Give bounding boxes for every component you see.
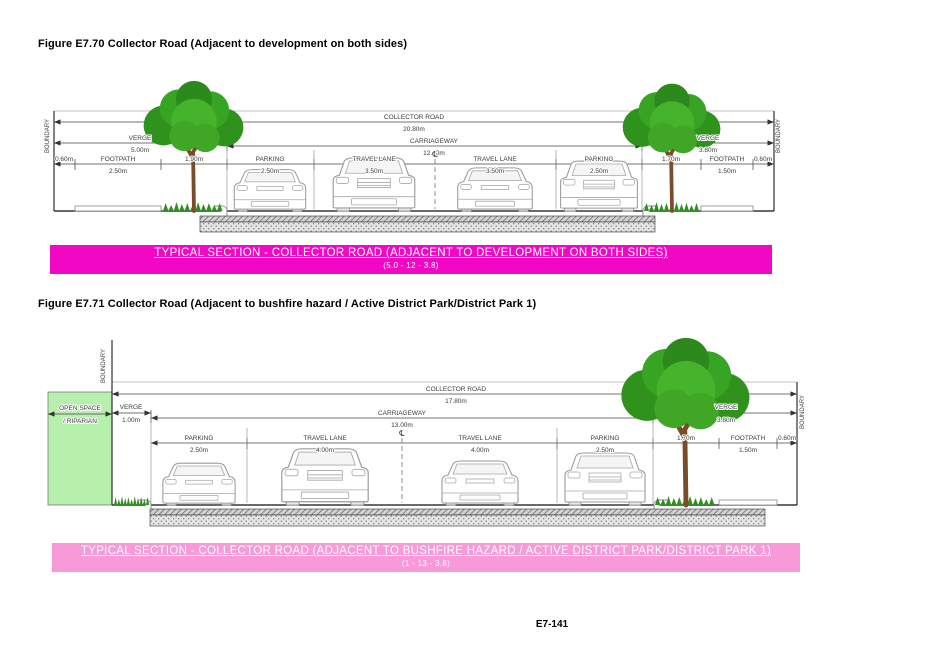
figure2-banner-title: TYPICAL SECTION - COLLECTOR ROAD (ADJACE… [52,543,800,559]
fig2-travel-left-label: TRAVEL LANE [303,435,347,442]
fig2-tree-strip-right-dim: 1.70m [677,435,695,442]
fig1-collector-road-label: COLLECTOR ROAD [384,114,445,121]
fig2-footpath-right-label: FOOTPATH [731,435,766,442]
fig2-verge-left-label: VERGE [120,404,143,411]
fig1-footpath-left-dim: 2.50m [109,168,127,175]
open-space-label-line2: / RIPARIAN [63,418,97,425]
fig2-parking-left-label: PARKING [185,435,214,442]
fig1-verge-right-dim: 3.80m [699,147,717,154]
figure2-diagram: OPEN SPACE / RIPARIAN BOUNDARY BOUNDARY … [48,338,806,526]
fig1-collector-road-dim: 20.80m [403,126,425,133]
fig2-boundary-left-label: BOUNDARY [101,349,107,383]
fig1-parking-left-dim: 2.50m [261,168,279,175]
fig1-travel-left-label: TRAVEL LANE [352,156,396,163]
fig2-footpath-right-dim: 1.50m [739,447,757,454]
fig1-footpath-right-label: FOOTPATH [710,156,745,163]
fig1-offset-right-dim: 0.60m [754,156,772,163]
fig2-travel-left-dim: 4.00m [316,447,334,454]
fig1-footpath-right-dim: 1.50m [718,168,736,175]
fig1-footpath-left-label: FOOTPATH [101,156,136,163]
fig2-parking-right-dim: 2.50m [596,447,614,454]
document-page: Figure E7.70 Collector Road (Adjacent to… [0,0,927,656]
figure1-banner-title: TYPICAL SECTION - COLLECTOR ROAD (ADJACE… [50,245,772,261]
fig2-carriageway-dim: 13.00m [391,422,413,429]
fig1-pavement-asphalt [200,216,655,222]
page-number: E7-141 [512,619,592,630]
fig1-boundary-left-label: BOUNDARY [45,119,51,153]
open-space-label-line1: OPEN SPACE [59,405,101,412]
fig2-collector-road-label: COLLECTOR ROAD [426,386,487,393]
fig1-travel-right-dim: 3.50m [486,168,504,175]
fig1-tree-strip-left-dim: 1.90m [185,156,203,163]
figure2-banner: TYPICAL SECTION - COLLECTOR ROAD (ADJACE… [52,543,800,572]
fig2-carriageway-label: CARRIAGEWAY [378,410,427,417]
fig2-verge-left-dim: 1.00m [122,417,140,424]
figure1-diagram: BOUNDARY BOUNDARY COLLECTOR ROAD 20.80m … [45,81,782,232]
fig1-verge-right-label: VERGE [697,135,720,142]
fig2-pavement-base [150,515,765,526]
fig2-travel-right-dim: 4.00m [471,447,489,454]
figure1-banner-subtitle: (5.0 - 12 - 3.8) [50,261,772,271]
fig1-verge-left-dim: 5.00m [131,147,149,154]
fig1-footpath-slab-right [701,206,753,211]
fig2-collector-road-dim: 17.80m [445,398,467,405]
car [565,453,645,505]
fig2-verge-right-dim: 3.80m [717,417,735,424]
fig1-centerline-symbol: ℄ [431,150,438,159]
fig2-parking-right-label: PARKING [591,435,620,442]
fig2-parking-left-dim: 2.50m [190,447,208,454]
fig1-parking-right-dim: 2.50m [590,168,608,175]
fig2-offset-right-dim: 0.60m [778,435,796,442]
fig2-travel-right-label: TRAVEL LANE [458,435,502,442]
fig1-tree-strip-right-dim: 1.70m [662,156,680,163]
car [442,461,518,505]
fig2-verge-right-label: VERGE [715,404,738,411]
car [282,449,368,505]
car [163,463,235,505]
fig1-carriageway-label: CARRIAGEWAY [410,138,459,145]
fig1-travel-left-dim: 3.50m [365,168,383,175]
car [333,158,415,211]
fig2-boundary-right-label: BOUNDARY [800,395,806,429]
fig2-centerline-symbol: ℄ [398,429,405,438]
fig1-parking-right-label: PARKING [585,156,614,163]
figure2-banner-subtitle: (1 - 13 - 3.8) [52,559,800,569]
fig2-footpath-slab-right [719,500,777,505]
car [234,170,305,211]
fig2-pavement-asphalt [150,509,765,515]
fig1-footpath-slab-left [75,206,161,211]
fig1-travel-right-label: TRAVEL LANE [473,156,517,163]
figure1-banner: TYPICAL SECTION - COLLECTOR ROAD (ADJACE… [50,245,772,274]
fig1-parking-left-label: PARKING [256,156,285,163]
street-tree [144,81,244,211]
fig1-boundary-right-label: BOUNDARY [776,119,782,153]
fig1-pavement-base [200,222,655,232]
fig1-offset-left-dim: 0.60m [55,156,73,163]
fig1-verge-left-label: VERGE [129,135,152,142]
